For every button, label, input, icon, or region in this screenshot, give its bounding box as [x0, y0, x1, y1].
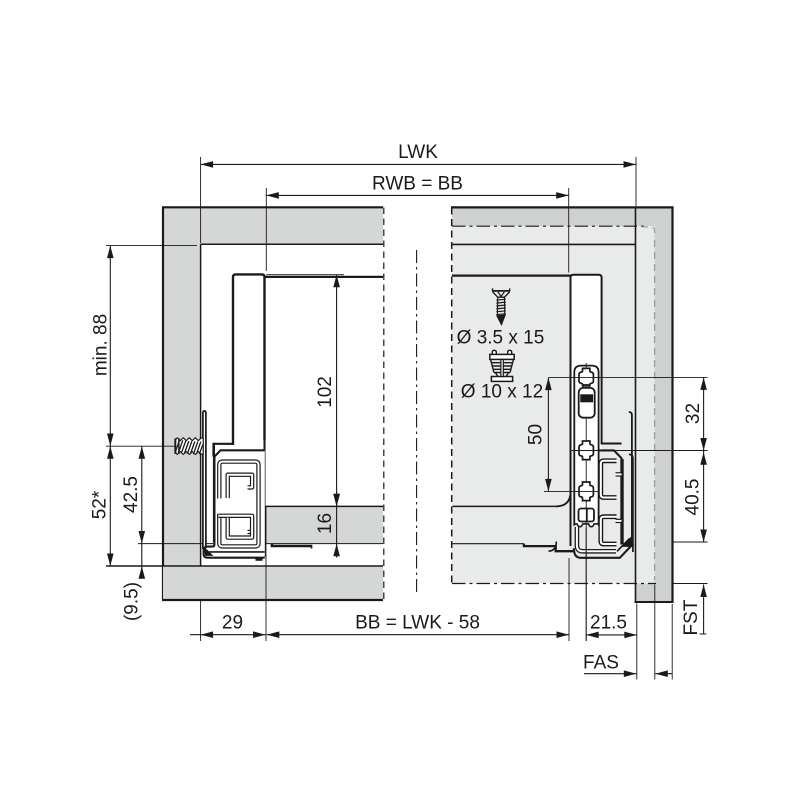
svg-text:21.5: 21.5: [590, 612, 627, 633]
svg-text:RWB = BB: RWB = BB: [372, 174, 463, 195]
svg-text:40.5: 40.5: [683, 479, 704, 516]
svg-text:52*: 52*: [90, 490, 111, 519]
svg-text:FST: FST: [681, 599, 702, 635]
svg-text:(9.5): (9.5): [122, 582, 143, 621]
svg-text:16: 16: [315, 513, 336, 534]
svg-text:Ø 3.5 x 15: Ø 3.5 x 15: [457, 328, 545, 349]
svg-text:min. 88: min. 88: [91, 314, 112, 376]
svg-text:102: 102: [315, 376, 336, 408]
svg-text:BB = LWK - 58: BB = LWK - 58: [355, 612, 480, 633]
svg-text:50: 50: [526, 424, 547, 445]
svg-text:29: 29: [222, 612, 243, 633]
svg-text:FAS: FAS: [583, 653, 619, 674]
svg-text:Ø 10 x 12: Ø 10 x 12: [461, 382, 543, 403]
svg-text:LWK: LWK: [398, 142, 438, 163]
svg-text:42.5: 42.5: [121, 476, 142, 513]
svg-text:32: 32: [683, 403, 704, 424]
